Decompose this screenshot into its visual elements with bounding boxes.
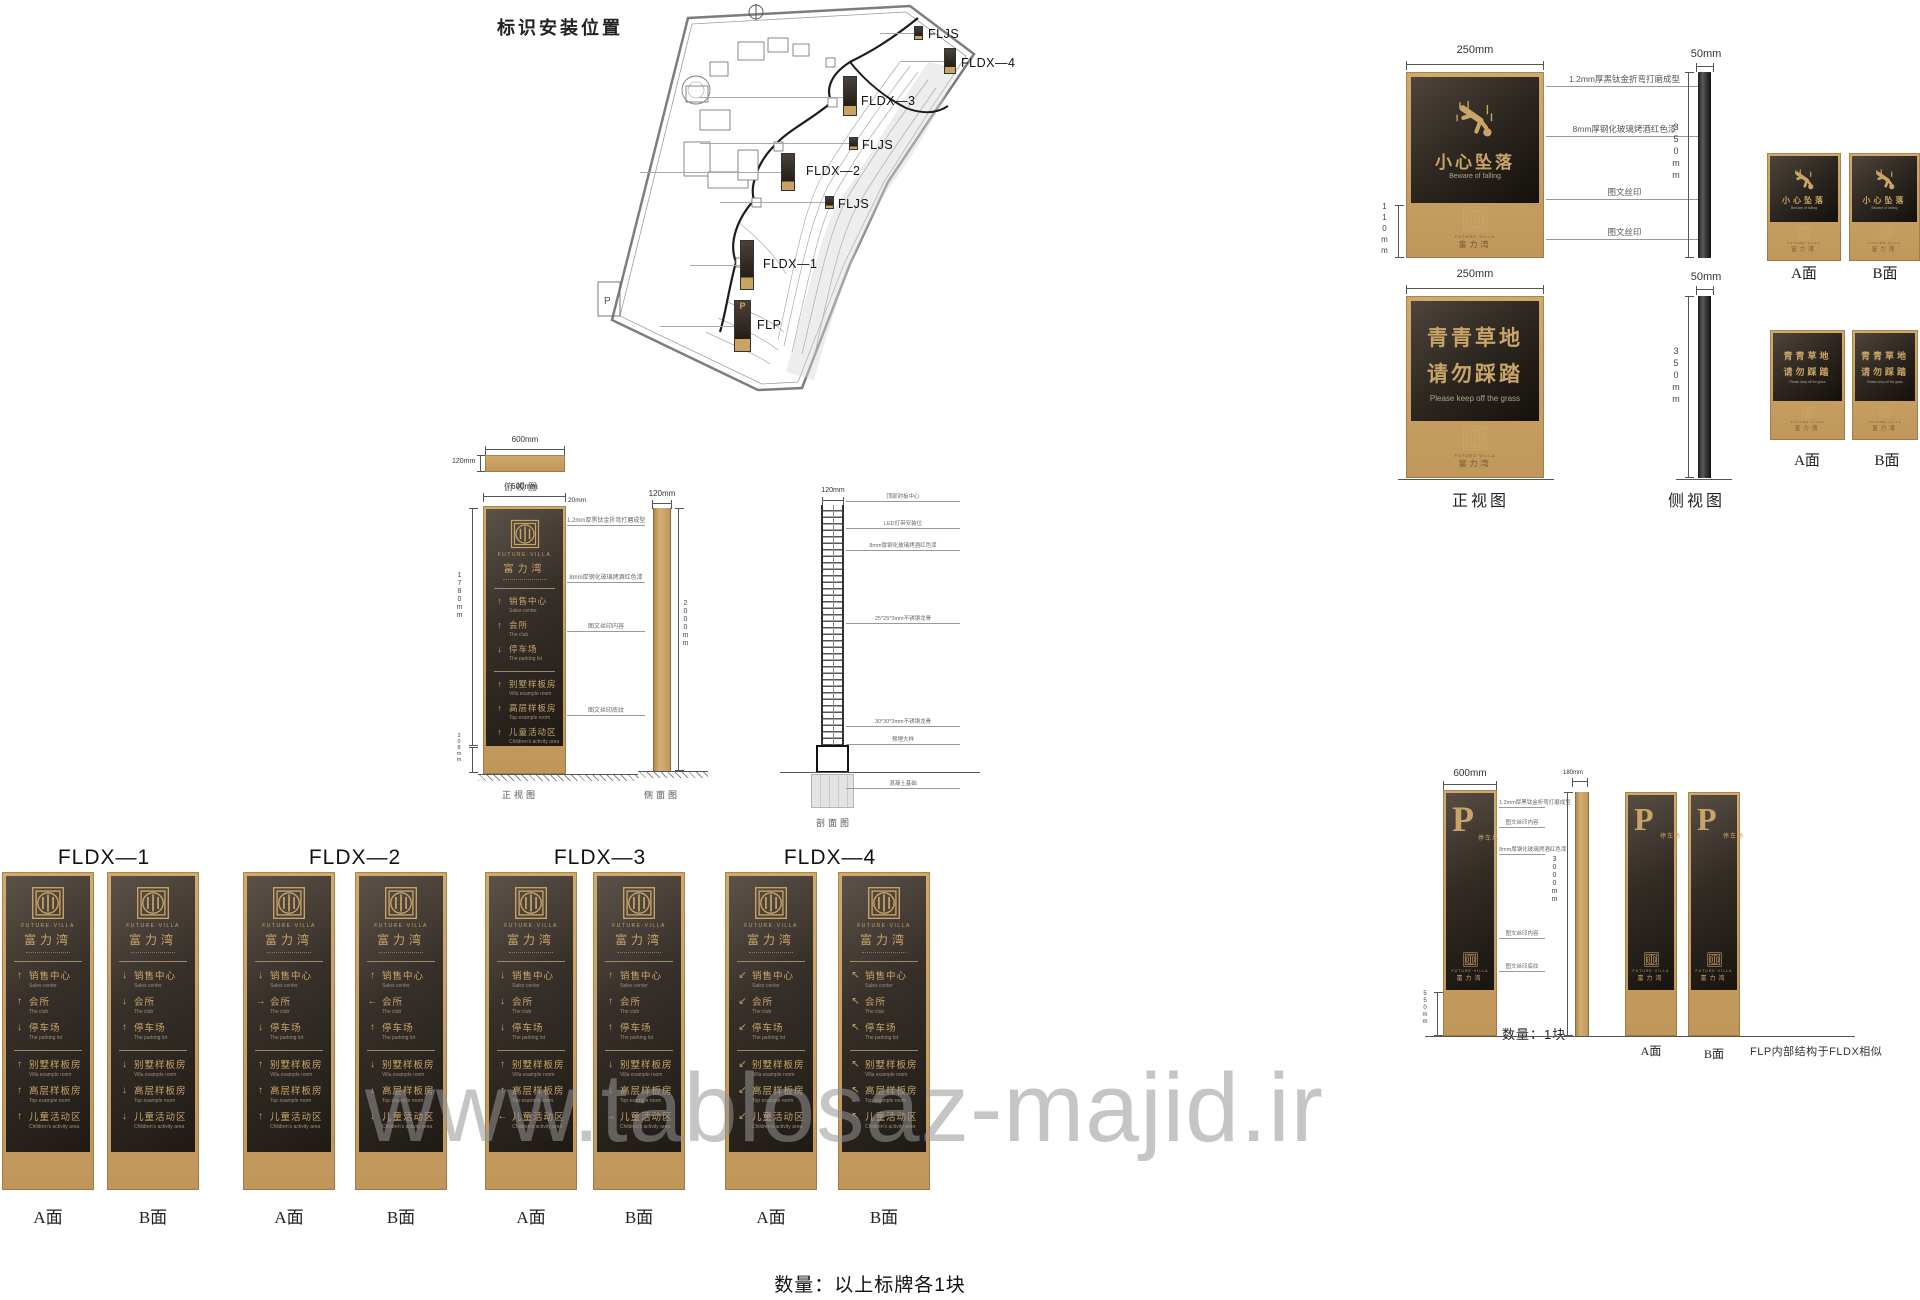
- brand-logo: FUTURE·VILLA富力湾: [254, 886, 324, 953]
- direction-arrow-icon: ↑: [494, 679, 505, 689]
- entry-label-en: Children's activity area: [134, 1124, 187, 1130]
- warning-text-cn: 小心坠落: [1863, 195, 1907, 206]
- brand-emblem: [136, 886, 170, 920]
- entry-label-cn: 销售中心: [509, 595, 547, 607]
- brand-name-cn: 富力湾: [1872, 424, 1898, 432]
- entry-label-cn: 销售中心: [29, 968, 71, 982]
- entry-label-cn: 停车场: [752, 1020, 784, 1034]
- flp-dim-w-line: [1443, 784, 1497, 785]
- section-dim-w-line: [822, 500, 844, 501]
- entry-label-cn: 停车场: [620, 1020, 652, 1034]
- entry-label-en: The club: [134, 1009, 187, 1015]
- entry-row: ↓会所: [119, 994, 187, 1008]
- directory-entry: ↖儿童活动区Children's activity area: [850, 1109, 918, 1130]
- entry-label-cn: 高层样板房: [134, 1083, 187, 1097]
- marker-leader-line: [690, 265, 740, 266]
- entry-label-en: The parking lot: [270, 1035, 323, 1041]
- thumbnail-face: 小心坠落Beware of falling: [1852, 156, 1917, 222]
- brand-name-en: FUTURE·VILLA: [857, 923, 911, 929]
- entry-label-en: Villa example room: [134, 1072, 187, 1078]
- falling-sign-thumbnail: 小心坠落Beware of fallingFUTURE·VILLA富力湾: [1767, 153, 1841, 261]
- map-sign-marker: [740, 240, 754, 290]
- plan-dim-h-line: [480, 455, 481, 472]
- entry-label-cn: 高层样板房: [512, 1083, 565, 1097]
- entry-label-cn: 会所: [509, 619, 528, 631]
- entry-row: ↙儿童活动区: [737, 1109, 805, 1123]
- ground-line: [1676, 479, 1732, 480]
- directory-entry: ↓儿童活动区Children's activity area: [367, 1109, 435, 1130]
- sign-face: FUTURE·VILLA富力湾↑销售中心Sales center↑会所The c…: [597, 876, 681, 1152]
- directory-entry: ↓别墅样板房Villa example room: [605, 1057, 673, 1078]
- entry-label-cn: 儿童活动区: [752, 1109, 805, 1123]
- entry-label-cn: 销售中心: [134, 968, 176, 982]
- flp-side-view-bar: [1575, 792, 1589, 1036]
- front-view-label: 正视图: [1452, 487, 1509, 511]
- entry-label-en: Children's activity area: [865, 1124, 918, 1130]
- directory-entry: ↑会所The club: [14, 994, 82, 1015]
- entry-label-cn: 会所: [382, 994, 403, 1008]
- section-dim-w-label: 120mm: [816, 487, 850, 494]
- plan-dim-h-label: 120mm: [452, 458, 475, 465]
- brand-emblem-icon: [1802, 406, 1814, 418]
- directory-entry: ←会所The club: [367, 994, 435, 1015]
- brand-logo: FUTURE·VILLA富力湾: [366, 886, 436, 953]
- direction-arrow-icon: ↑: [255, 1085, 266, 1096]
- entry-label-cn: 销售中心: [270, 968, 312, 982]
- entry-row: ←儿童活动区: [497, 1109, 565, 1123]
- entry-label-cn: 会所: [865, 994, 886, 1008]
- entry-label-en: Top example room: [270, 1098, 323, 1104]
- entry-label-en: Sales center: [29, 983, 82, 989]
- parking-sign-tower: P停车场FUTURE·VILLA富力湾: [1443, 790, 1497, 1036]
- warning-text-en: Beware of falling: [1872, 206, 1898, 210]
- parking-sign-tower: P停车场FUTURE·VILLA富力湾: [1625, 792, 1677, 1036]
- entry-label-en: The club: [29, 1009, 82, 1015]
- direction-arrow-icon: ↓: [119, 970, 130, 981]
- dim-width-label: 250mm: [1406, 268, 1544, 280]
- flp-dim-base-label: 550mm: [1422, 991, 1428, 1026]
- directory-entry: ↑销售中心Sales center: [367, 968, 435, 989]
- brand-emblem: [622, 886, 656, 920]
- brand-name-cn: 富力湾: [504, 560, 546, 575]
- entry-row: ↖销售中心: [850, 968, 918, 982]
- brand-logo: FUTURE·VILLA富力湾: [736, 886, 806, 953]
- direction-arrow-icon: ↖: [850, 1111, 861, 1122]
- parking-p-letter: P: [1452, 801, 1488, 837]
- direction-arrow-icon: ↙: [737, 1111, 748, 1122]
- brand-tagline-rule: [749, 951, 793, 953]
- entry-label-en: The club: [865, 1009, 918, 1015]
- brand-emblem-icon: [622, 886, 656, 920]
- warning-text-en: Beware of falling: [1791, 206, 1817, 210]
- entry-label-en: The parking lot: [620, 1035, 673, 1041]
- dim-thickness-line: [1696, 66, 1714, 67]
- direction-sign-tower: FUTURE·VILLA富力湾↑销售中心Sales center↑会所The c…: [483, 506, 566, 774]
- falling-person-icon: [1873, 169, 1897, 193]
- brand-emblem-icon: [1462, 425, 1488, 451]
- entry-label-cn: 高层样板房: [509, 702, 557, 714]
- thumbnail-face-label: A面: [1767, 262, 1841, 283]
- directory-entry: ↓高层样板房Top example room: [605, 1083, 673, 1104]
- face-b-label: B面: [355, 1203, 447, 1228]
- entry-row: →会所: [255, 994, 323, 1008]
- brand-name-cn: 富力湾: [615, 931, 663, 948]
- divider-line: [497, 1050, 565, 1051]
- dim-thickness-line: [1696, 289, 1714, 290]
- direction-arrow-icon: ↓: [14, 1022, 25, 1033]
- brand-tagline-rule: [131, 951, 175, 953]
- brand-emblem-icon: [514, 886, 548, 920]
- plan-view-bar: [485, 455, 565, 472]
- flp-quantity-label: 数量：1块: [1502, 1024, 1566, 1043]
- brand-emblem-icon: [384, 886, 418, 920]
- entry-row: ↓停车场: [14, 1020, 82, 1034]
- entry-label-cn: 停车场: [865, 1020, 897, 1034]
- direction-sign-tower: FUTURE·VILLA富力湾↙销售中心Sales center↙会所The c…: [725, 872, 817, 1190]
- directory-entry: ↖销售中心Sales center: [850, 968, 918, 989]
- entry-row: ↑停车场: [367, 1020, 435, 1034]
- quantity-note: 数量：以上标牌各1块: [720, 1270, 1020, 1297]
- directory-entry: ←儿童活动区Children's activity area: [497, 1109, 565, 1130]
- entry-label-en: The parking lot: [29, 1035, 82, 1041]
- brand-emblem-icon: [510, 519, 540, 549]
- warning-sign-face: 青青草地 请勿踩踏 Please keep off the grass: [1411, 301, 1539, 421]
- entry-row: ↙高层样板房: [737, 1083, 805, 1097]
- entry-row: ↓高层样板房: [367, 1083, 435, 1097]
- annotation-label: 图文丝印内容: [567, 621, 645, 632]
- directory-entry: ↖会所The club: [850, 994, 918, 1015]
- brand-name-en: FUTURE·VILLA: [612, 923, 666, 929]
- entry-label-en: Top example room: [512, 1098, 565, 1104]
- directory-entry: ↖高层样板房Top example room: [850, 1083, 918, 1104]
- direction-arrow-icon: ↑: [494, 727, 505, 737]
- entry-label-cn: 会所: [134, 994, 155, 1008]
- face-a-label: A面: [2, 1203, 94, 1228]
- thumbnail-face-label: A面: [1770, 449, 1844, 470]
- warning-sign-side-profile: [1698, 296, 1711, 478]
- entry-label-cn: 会所: [752, 994, 773, 1008]
- annotation-label: 25*25*3mm不锈钢龙骨: [846, 614, 960, 624]
- entry-row: ↓别墅样板房: [605, 1057, 673, 1071]
- dim-height-line: [1688, 72, 1689, 258]
- sign-face: FUTURE·VILLA富力湾↓销售中心Sales center→会所The c…: [247, 876, 331, 1152]
- divider-line: [737, 1050, 805, 1051]
- brand-tagline-rule: [379, 951, 423, 953]
- annotation-label: 8mm厚钢化玻璃烤酒红色漆: [567, 572, 645, 583]
- brand-emblem-icon: [867, 886, 901, 920]
- map-marker-label: FLJS: [838, 197, 869, 211]
- sign-face: FUTURE·VILLA富力湾↑销售中心Sales center↑会所The c…: [6, 876, 90, 1152]
- annotation-label: 1.2mm厚黑钛金折弯打磨成型: [567, 515, 645, 526]
- direction-arrow-icon: ↑: [494, 620, 505, 630]
- marker-leader-line: [900, 61, 944, 62]
- thumbnail-face-label: B面: [1850, 449, 1920, 470]
- entry-label-en: Sales center: [382, 983, 435, 989]
- divider-line: [850, 1050, 918, 1051]
- map-marker-label: FLDX—2: [806, 164, 860, 178]
- brand-emblem-icon: [1707, 952, 1722, 967]
- warning-text-cn: 小心坠落: [1782, 195, 1826, 206]
- flp-dim-w-label: 600mm: [1443, 768, 1497, 779]
- grass-sign-thumbnail: 青青草地请勿踩踏Please keep off the grassFUTURE·…: [1852, 330, 1918, 440]
- entry-label-cn: 停车场: [509, 643, 538, 655]
- direction-arrow-icon: ↖: [850, 1022, 861, 1033]
- annotation-label: 图文丝印内容: [1499, 818, 1545, 828]
- map-sign-marker: [849, 137, 858, 150]
- brand-logo: FUTURE·VILLA富力湾: [1691, 952, 1737, 982]
- entry-row: ↓会所: [497, 994, 565, 1008]
- thumbnail-face: 小心坠落Beware of falling: [1770, 156, 1838, 222]
- entry-label-cn: 高层样板房: [270, 1083, 323, 1097]
- brand-name-cn: 富力湾: [507, 931, 555, 948]
- map-sign-marker: [781, 153, 795, 191]
- direction-arrow-icon: ↓: [494, 644, 505, 654]
- warning-sign-grass-front: 青青草地 请勿踩踏 Please keep off the grass FUTU…: [1406, 296, 1544, 478]
- dim-height-line: [1688, 296, 1689, 478]
- annotation-label: 图文丝印内容: [1499, 929, 1545, 939]
- divider-line: [494, 588, 555, 589]
- direction-arrow-icon: ↑: [367, 1022, 378, 1033]
- directory-entry: ↓停车场The parking lot: [14, 1020, 82, 1041]
- sign-face: FUTURE·VILLA富力湾↑销售中心Sales center↑会所The c…: [486, 509, 563, 746]
- directory-entry: ↑高层样板房Top example room: [497, 1083, 565, 1104]
- thumbnail-base: FUTURE·VILLA富力湾: [1770, 222, 1838, 258]
- warning-text-en: Please keep off the grass: [1790, 380, 1826, 384]
- entry-row: ↑别墅样板房: [497, 1057, 565, 1071]
- brand-emblem-icon: [1879, 406, 1891, 418]
- entry-label-cn: 别墅样板房: [382, 1057, 435, 1071]
- side-view-label: 侧面图: [644, 788, 680, 801]
- map-marker-label: FLJS: [862, 138, 893, 152]
- entry-label-cn: 别墅样板房: [509, 678, 557, 690]
- entry-row: →儿童活动区: [605, 1109, 673, 1123]
- brand-emblem-icon: [1644, 952, 1659, 967]
- side-view-label: 侧视图: [1668, 487, 1725, 511]
- brand-emblem-icon: [1707, 952, 1722, 967]
- entry-row: ↓儿童活动区: [119, 1109, 187, 1123]
- entry-label-cn: 儿童活动区: [382, 1109, 435, 1123]
- fldx-variant-title: FLDX—3: [538, 846, 662, 870]
- entry-label-cn: 儿童活动区: [29, 1109, 82, 1123]
- directory-entry: ↑停车场The parking lot: [119, 1020, 187, 1041]
- direction-sign-tower: FUTURE·VILLA富力湾↓销售中心Sales center→会所The c…: [243, 872, 335, 1190]
- entry-label-en: The parking lot: [752, 1035, 805, 1041]
- brand-name-en: FUTURE·VILLA: [498, 552, 552, 558]
- directory-entry: ↑儿童活动区Children's activity area: [255, 1109, 323, 1130]
- brand-name-en: FUTURE·VILLA: [744, 923, 798, 929]
- warning-text-cn-line1: 青青草地: [1427, 322, 1523, 352]
- entry-row: ↖停车场: [850, 1020, 918, 1034]
- entry-row: ↙别墅样板房: [737, 1057, 805, 1071]
- thumbnail-face: 青青草地请勿踩踏Please keep off the grass: [1773, 333, 1842, 401]
- entry-label-en: The parking lot: [382, 1035, 435, 1041]
- direction-arrow-icon: ↖: [850, 1059, 861, 1070]
- side-dim-h-line: [678, 508, 679, 771]
- entry-label-cn: 会所: [512, 994, 533, 1008]
- map-marker-label: FLJS: [928, 27, 959, 41]
- entry-label-cn: 停车场: [29, 1020, 61, 1034]
- entry-label-cn: 销售中心: [512, 968, 554, 982]
- brand-logo: FUTURE·VILLA富力湾: [13, 886, 83, 953]
- entry-label-en: The parking lot: [865, 1035, 918, 1041]
- directory-entry: ↑停车场The parking lot: [367, 1020, 435, 1041]
- entry-row: ↑会所: [14, 994, 82, 1008]
- direction-arrow-icon: ↙: [737, 970, 748, 981]
- annotation-label: LED灯带安装位: [846, 519, 960, 529]
- brand-tagline-rule: [862, 951, 906, 953]
- directory-entry: ↑别墅样板房Villa example room: [14, 1057, 82, 1078]
- brand-name-cn: 富力湾: [1791, 245, 1817, 253]
- warning-text-cn-line2: 请勿踩踏: [1861, 365, 1909, 378]
- ground-line: [780, 772, 980, 773]
- divider-line: [119, 1050, 187, 1051]
- direction-sign-tower: FUTURE·VILLA富力湾↑销售中心Sales center↑会所The c…: [593, 872, 685, 1190]
- direction-arrow-icon: ↑: [14, 996, 25, 1007]
- map-marker-label: FLDX—1: [763, 257, 817, 271]
- directory-entry: ↓停车场The parking lot: [255, 1020, 323, 1041]
- brand-logo: FUTURE·VILLA富力湾: [118, 886, 188, 953]
- direction-arrow-icon: ↑: [497, 1059, 508, 1070]
- brand-emblem: [867, 886, 901, 920]
- entry-label-en: Children's activity area: [509, 739, 555, 745]
- entry-label-cn: 别墅样板房: [865, 1057, 918, 1071]
- direction-arrow-icon: ↑: [494, 703, 505, 713]
- entry-label-cn: 销售中心: [382, 968, 424, 982]
- direction-arrow-icon: ↑: [14, 1085, 25, 1096]
- entry-label-cn: 销售中心: [865, 968, 907, 982]
- marker-leader-line: [640, 172, 781, 173]
- entry-row: ↖别墅样板房: [850, 1057, 918, 1071]
- flp-dim-side-label: 180mm: [1563, 770, 1583, 776]
- sign-face: FUTURE·VILLA富力湾↙销售中心Sales center↙会所The c…: [729, 876, 813, 1152]
- directory-entry: ↑销售中心Sales center: [494, 595, 555, 614]
- ground-hatch: [638, 771, 708, 778]
- entry-label-cn: 别墅样板房: [29, 1057, 82, 1071]
- side-dim-w-label: 120mm: [645, 489, 679, 498]
- entry-row: ↑销售中心: [494, 595, 555, 607]
- direction-arrow-icon: ↑: [605, 1022, 616, 1033]
- front-dim-body-line: [472, 508, 473, 746]
- brand-name-cn: 富力湾: [1459, 239, 1492, 250]
- front-dim-w-line: [483, 496, 566, 497]
- divider-line: [367, 1050, 435, 1051]
- brand-emblem: [754, 886, 788, 920]
- entry-label-en: Top example room: [134, 1098, 187, 1104]
- directory-entry: ↑别墅样板房Villa example room: [255, 1057, 323, 1078]
- brand-name-en: FUTURE·VILLA: [21, 923, 75, 929]
- brand-tagline-rule: [267, 951, 311, 953]
- annotation-label: 图文丝印: [1546, 186, 1703, 200]
- dim-thickness-label: 50mm: [1686, 48, 1726, 60]
- section-steel-frame: [821, 505, 844, 745]
- entry-label-en: Children's activity area: [270, 1124, 323, 1130]
- directory-entry: ↓儿童活动区Children's activity area: [119, 1109, 187, 1130]
- direction-arrow-icon: ↑: [14, 1111, 25, 1122]
- flp-dim-base-line: [1437, 992, 1438, 1036]
- entry-row: ↓高层样板房: [605, 1083, 673, 1097]
- warning-text-cn-line1: 青青草地: [1861, 349, 1909, 362]
- directory-entry: →儿童活动区Children's activity area: [605, 1109, 673, 1130]
- map-sign-marker: [843, 76, 857, 116]
- warning-text-en: Please keep off the grass: [1867, 380, 1903, 384]
- divider-line: [850, 961, 918, 962]
- divider-line: [605, 1050, 673, 1051]
- entry-row: ↑高层样板房: [255, 1083, 323, 1097]
- brand-logo: FUTURE·VILLA富力湾: [849, 886, 919, 953]
- entry-label-en: The club: [270, 1009, 323, 1015]
- entry-row: ↑别墅样板房: [255, 1057, 323, 1071]
- brand-logo: FUTURE·VILLA富力湾: [604, 886, 674, 953]
- sign-face: FUTURE·VILLA富力湾↖销售中心Sales center↖会所The c…: [842, 876, 926, 1152]
- direction-sign-tower: FUTURE·VILLA富力湾↖销售中心Sales center↖会所The c…: [838, 872, 930, 1190]
- dim-thickness-label: 50mm: [1686, 271, 1726, 283]
- entry-label-en: Sales center: [509, 608, 555, 614]
- directory-entry: ↙销售中心Sales center: [737, 968, 805, 989]
- plan-dim-w-line: [485, 449, 565, 450]
- face-a-label: A面: [725, 1203, 817, 1228]
- front-dim-edge-label: 20mm: [568, 497, 586, 504]
- divider-line: [497, 961, 565, 962]
- front-dim-body-label: 1780mm: [456, 572, 463, 620]
- direction-sign-tower: FUTURE·VILLA富力湾↓销售中心Sales center↓会所The c…: [107, 872, 199, 1190]
- ground-hatch: [478, 774, 638, 781]
- entry-row: ↑停车场: [119, 1020, 187, 1034]
- brand-emblem-icon: [1879, 227, 1891, 239]
- map-sign-marker: [914, 26, 923, 40]
- marker-leader-line: [700, 143, 849, 144]
- entry-row: ↑销售中心: [605, 968, 673, 982]
- entry-row: ←会所: [367, 994, 435, 1008]
- brand-emblem-icon: [1798, 227, 1810, 239]
- brand-tagline-rule: [26, 951, 70, 953]
- face-b-label: B面: [593, 1203, 685, 1228]
- direction-arrow-icon: ↑: [367, 970, 378, 981]
- flp-dim-h-line: [1567, 792, 1568, 1036]
- warning-text-en: Beware of falling: [1449, 173, 1501, 180]
- entry-label-en: Villa example room: [270, 1072, 323, 1078]
- directory-entry: ↑销售中心Sales center: [605, 968, 673, 989]
- brand-name-en: FUTURE·VILLA: [504, 923, 558, 929]
- entry-row: ↓儿童活动区: [367, 1109, 435, 1123]
- directory-entry: ↓销售中心Sales center: [119, 968, 187, 989]
- entry-label-en: The parking lot: [134, 1035, 187, 1041]
- direction-arrow-icon: ↙: [737, 1022, 748, 1033]
- entry-row: ↙会所: [737, 994, 805, 1008]
- warning-text-cn-line1: 青青草地: [1783, 349, 1831, 362]
- entry-row: ↙停车场: [737, 1020, 805, 1034]
- entry-row: ↑别墅样板房: [14, 1057, 82, 1071]
- entry-label-cn: 别墅样板房: [134, 1057, 187, 1071]
- entry-label-cn: 高层样板房: [865, 1083, 918, 1097]
- dim-base-line: [1398, 205, 1399, 258]
- entry-label-en: Villa example room: [752, 1072, 805, 1078]
- directory-entry: ↑停车场The parking lot: [605, 1020, 673, 1041]
- direction-arrow-icon: ↙: [737, 1085, 748, 1096]
- brand-tagline-rule: [509, 951, 553, 953]
- divider-line: [119, 961, 187, 962]
- grass-sign-thumbnail: 青青草地请勿踩踏Please keep off the grassFUTURE·…: [1770, 330, 1845, 440]
- map-sign-marker: P: [734, 300, 751, 352]
- divider-line: [255, 961, 323, 962]
- annotation-label: 图文丝印: [1546, 226, 1703, 240]
- directory-entry: ↑别墅样板房Villa example room: [497, 1057, 565, 1078]
- direction-arrow-icon: ↑: [14, 1059, 25, 1070]
- entry-row: ↓停车场: [494, 643, 555, 655]
- parking-sign-tower: P停车场FUTURE·VILLA富力湾: [1688, 792, 1740, 1036]
- brand-name-cn: 富力湾: [24, 931, 72, 948]
- parking-sign-face: P停车场FUTURE·VILLA富力湾: [1691, 795, 1737, 990]
- entry-label-en: Villa example room: [509, 691, 555, 697]
